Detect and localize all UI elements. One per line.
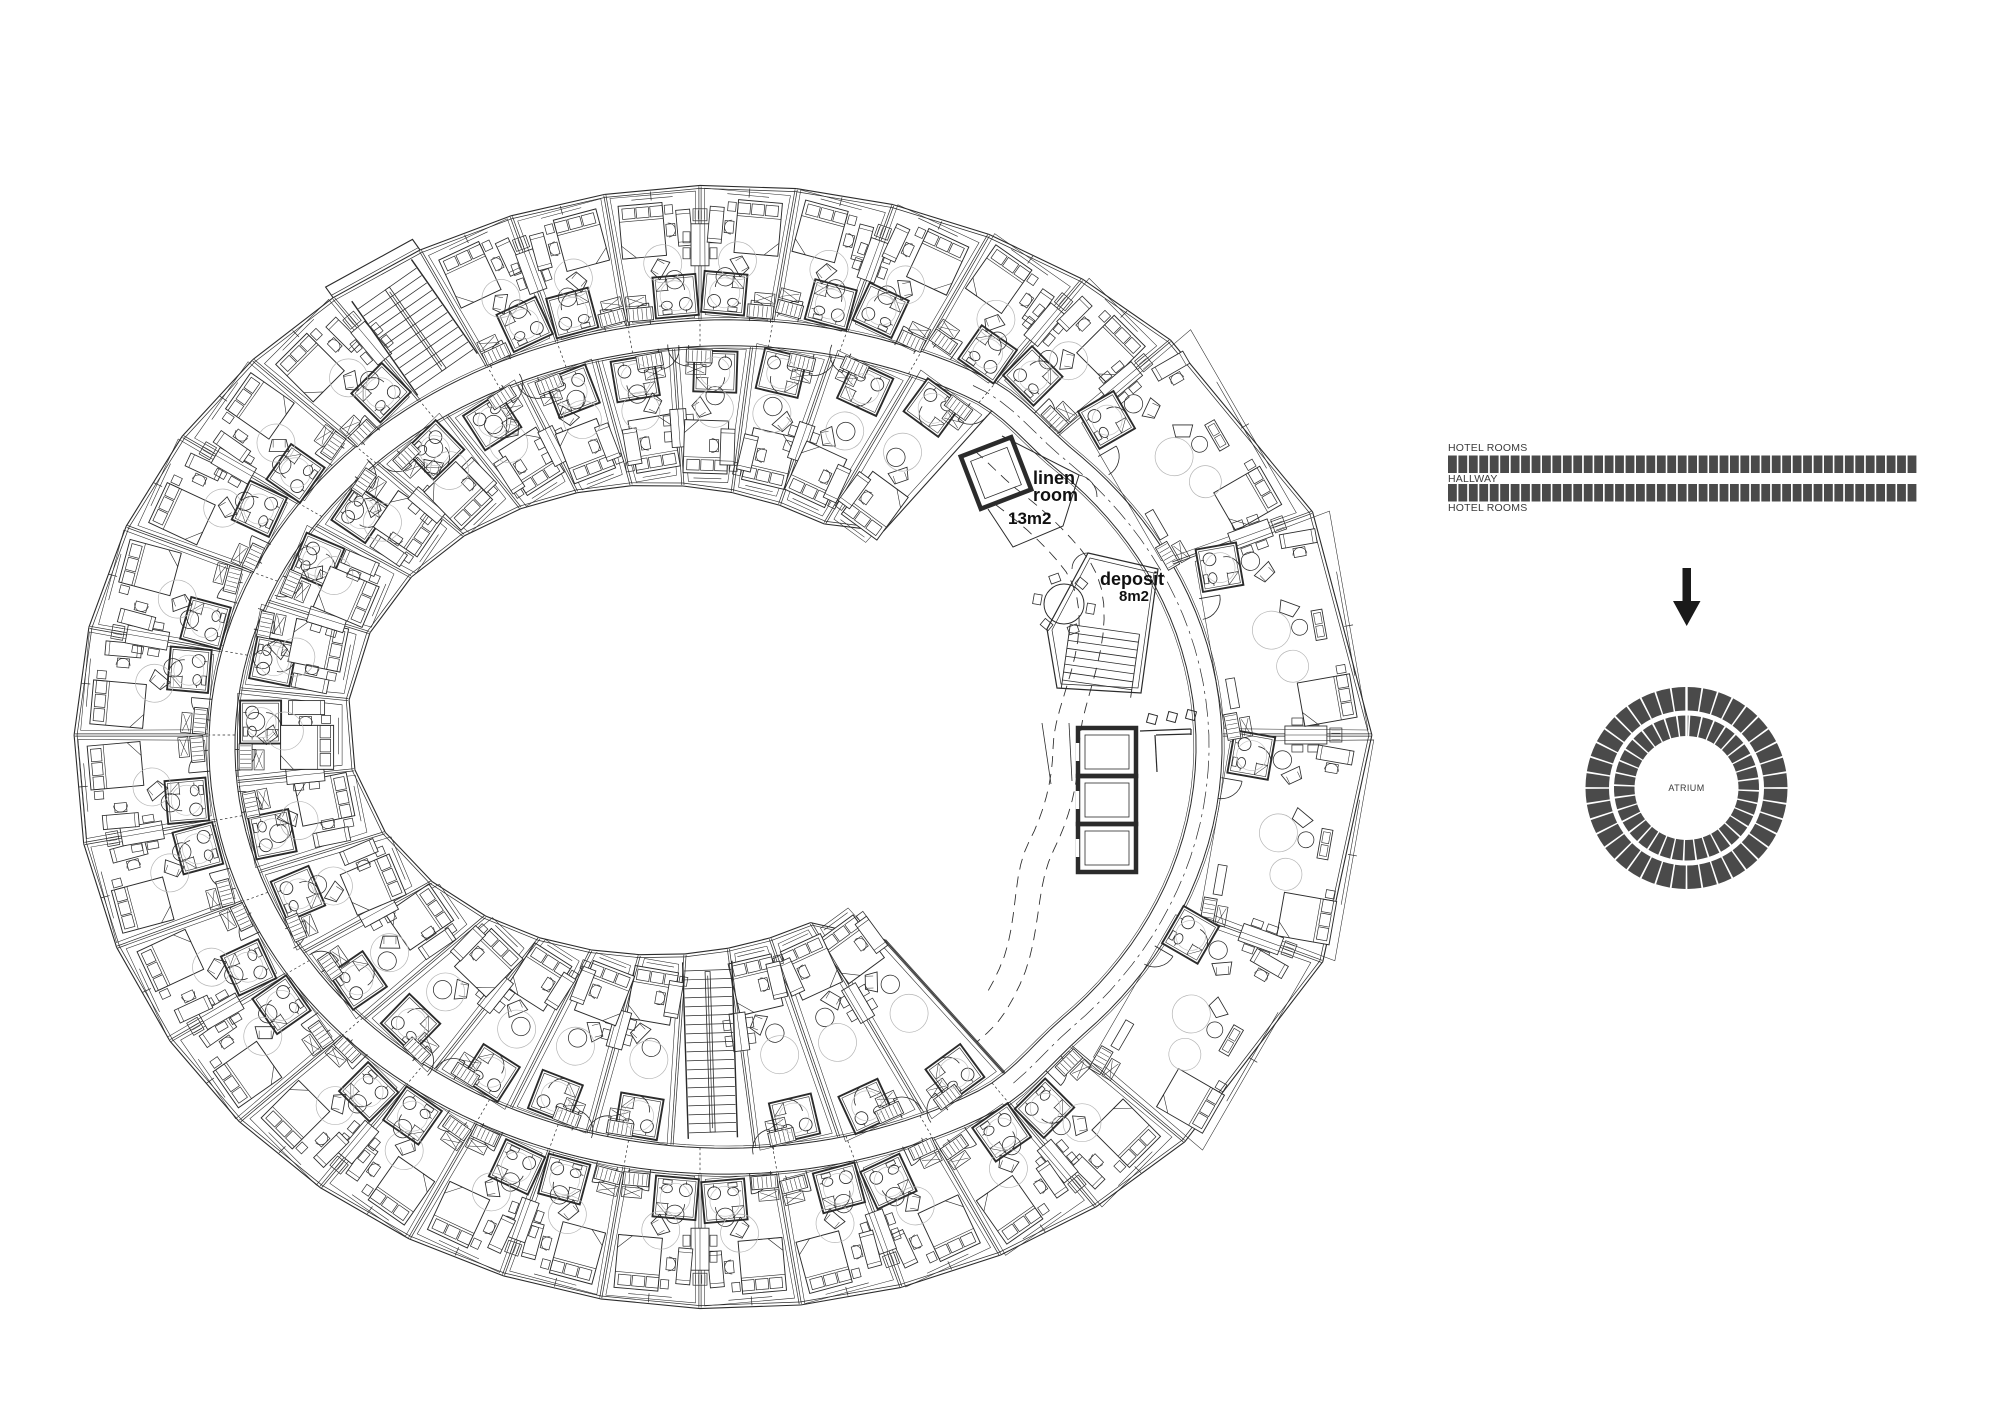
svg-text:HOTEL ROOMS: HOTEL ROOMS bbox=[1448, 442, 1527, 454]
svg-text:deposit: deposit bbox=[1100, 569, 1164, 589]
svg-text:room: room bbox=[1033, 485, 1078, 505]
svg-text:13m2: 13m2 bbox=[1008, 509, 1051, 528]
svg-text:8m2: 8m2 bbox=[1119, 588, 1149, 605]
svg-text:HOTEL ROOMS: HOTEL ROOMS bbox=[1448, 502, 1527, 514]
svg-text:ATRIUM: ATRIUM bbox=[1668, 783, 1704, 793]
svg-text:HALLWAY: HALLWAY bbox=[1448, 473, 1498, 485]
